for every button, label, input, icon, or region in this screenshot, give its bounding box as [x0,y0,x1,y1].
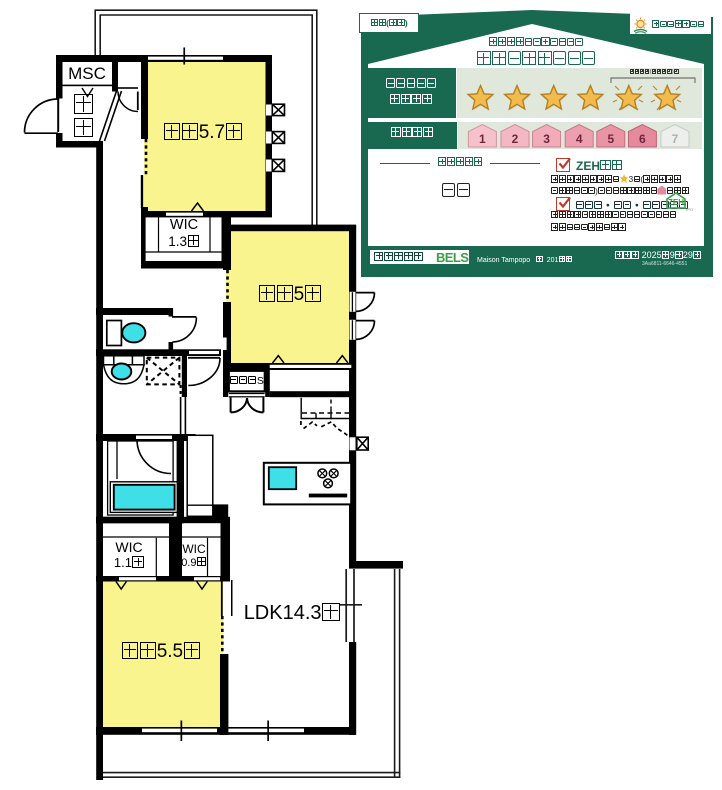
svg-text:1: 1 [479,132,486,146]
svg-text:6: 6 [639,132,646,146]
svg-text:7: 7 [672,132,679,146]
svg-text:4: 4 [576,132,583,146]
svg-text:2: 2 [512,132,519,146]
svg-text:5: 5 [607,132,614,146]
svg-text:ZEH: ZEH [668,198,684,207]
svg-text:3: 3 [543,132,550,146]
svg-text:TPO: TPO [685,207,693,212]
